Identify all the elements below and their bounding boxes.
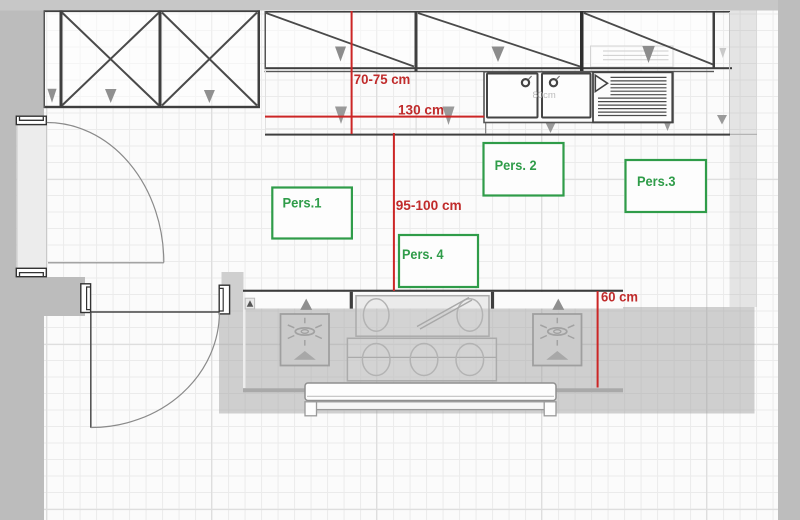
svg-text:130 cm: 130 cm	[398, 102, 444, 118]
svg-text:Pers.3: Pers.3	[637, 173, 676, 189]
svg-text:Pers.1: Pers.1	[283, 195, 322, 211]
svg-text:80cm: 80cm	[533, 90, 556, 101]
svg-text:60 cm: 60 cm	[601, 288, 638, 304]
svg-text:Pers. 4: Pers. 4	[402, 246, 444, 262]
svg-text:95-100 cm: 95-100 cm	[396, 197, 462, 213]
svg-text:Pers. 2: Pers. 2	[495, 157, 537, 173]
svg-text:70-75 cm: 70-75 cm	[354, 71, 411, 87]
